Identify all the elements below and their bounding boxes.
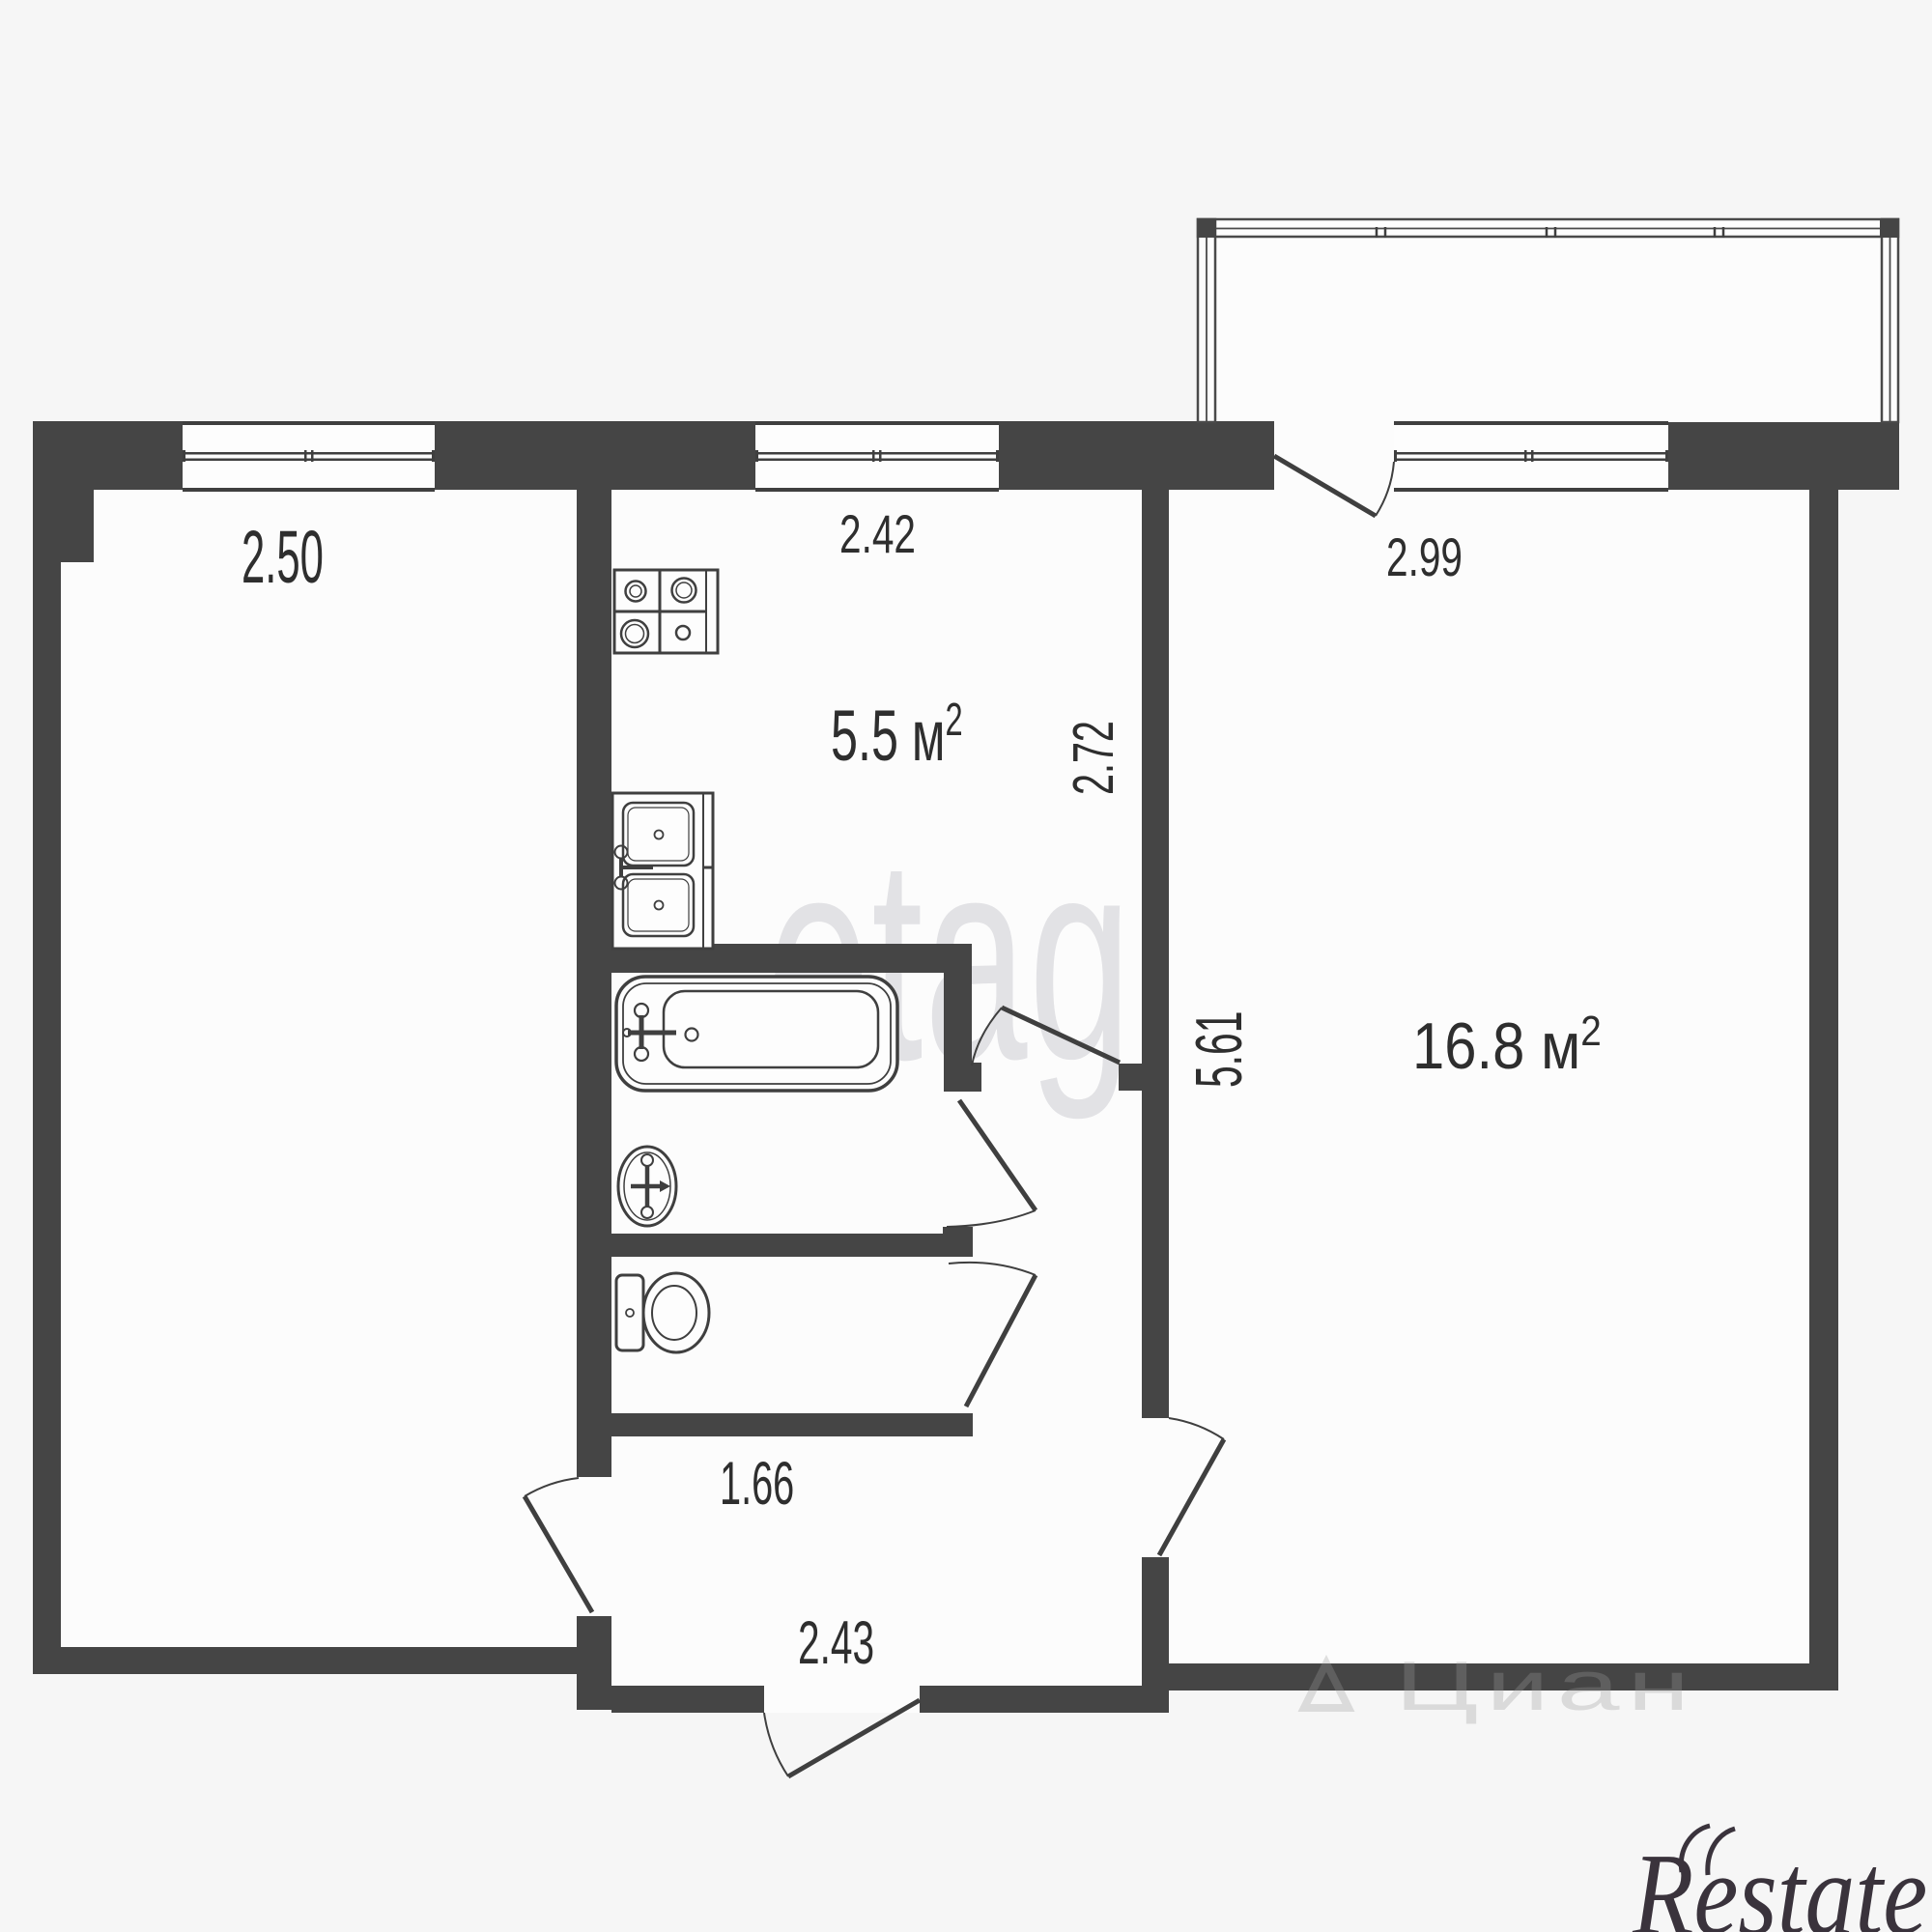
svg-text:Циан: Циан	[1395, 1647, 1697, 1725]
svg-text:2.42: 2.42	[839, 505, 916, 565]
svg-text:2.99: 2.99	[1386, 528, 1463, 588]
svg-text:2.50: 2.50	[241, 516, 324, 599]
svg-text:2.72: 2.72	[1062, 721, 1125, 795]
svg-text:Restate: Restate	[1632, 1830, 1927, 1932]
svg-text:2.43: 2.43	[798, 1609, 874, 1677]
svg-text:5.61: 5.61	[1181, 1011, 1255, 1088]
svg-text:1.66: 1.66	[720, 1450, 794, 1519]
svg-text:5.5 м2: 5.5 м2	[831, 694, 963, 777]
svg-text:16.8 м2: 16.8 м2	[1412, 1007, 1602, 1083]
